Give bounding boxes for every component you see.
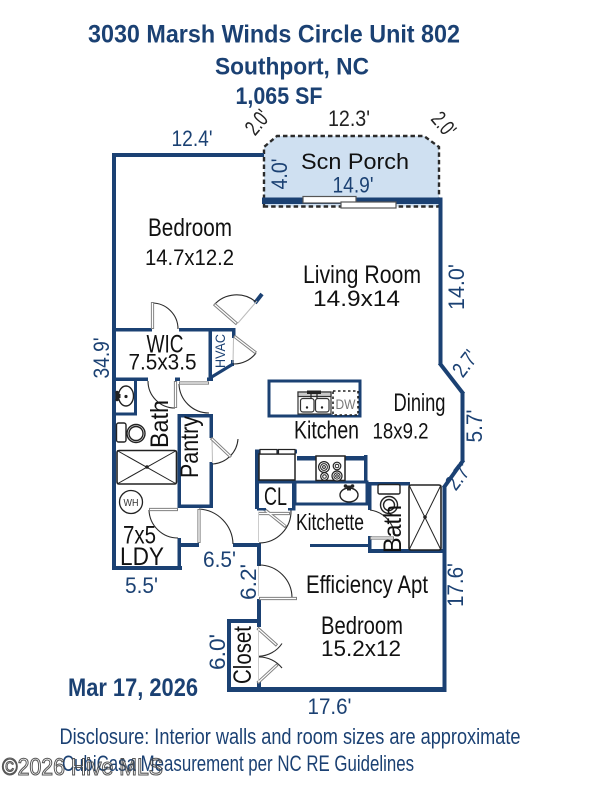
svg-text:Bedroom: Bedroom xyxy=(148,214,232,242)
svg-text:Kitchette: Kitchette xyxy=(296,509,364,535)
svg-text:6.2': 6.2' xyxy=(236,564,261,600)
svg-text:6.0': 6.0' xyxy=(205,634,230,670)
svg-text:Disclosure: Interior walls and: Disclosure: Interior walls and room size… xyxy=(60,724,521,749)
svg-text:18x9.2: 18x9.2 xyxy=(373,419,429,444)
svg-text:7.5x3.5: 7.5x3.5 xyxy=(129,350,197,375)
svg-text:WH: WH xyxy=(124,497,139,509)
svg-text:Efficiency Apt: Efficiency Apt xyxy=(306,571,428,599)
svg-text:14.0': 14.0' xyxy=(444,264,469,310)
svg-text:17.6': 17.6' xyxy=(308,694,352,719)
svg-text:HVAC: HVAC xyxy=(212,334,228,368)
svg-text:14.7x12.2: 14.7x12.2 xyxy=(145,245,234,270)
svg-text:1,065 SF: 1,065 SF xyxy=(236,83,323,110)
svg-text:2.0': 2.0' xyxy=(426,107,461,142)
svg-text:14.9x14: 14.9x14 xyxy=(313,286,400,311)
svg-text:4.0': 4.0' xyxy=(267,159,292,190)
svg-text:CL: CL xyxy=(264,483,287,511)
svg-text:6.5': 6.5' xyxy=(203,547,236,572)
svg-text:12.4': 12.4' xyxy=(172,126,213,151)
svg-text:Dining: Dining xyxy=(394,389,446,417)
svg-text:5.7': 5.7' xyxy=(462,410,487,443)
svg-text:DW: DW xyxy=(336,396,357,412)
svg-text:3030 Marsh Winds Circle Unit 8: 3030 Marsh Winds Circle Unit 802 xyxy=(88,21,460,49)
svg-text:Mar 17, 2026: Mar 17, 2026 xyxy=(68,674,198,702)
svg-text:34.9': 34.9' xyxy=(89,338,114,379)
svg-text:14.9': 14.9' xyxy=(333,173,374,198)
svg-text:Kitchen: Kitchen xyxy=(294,417,359,445)
svg-text:5.5': 5.5' xyxy=(125,573,158,598)
svg-text:Scn Porch: Scn Porch xyxy=(301,149,409,174)
svg-text:Living Room: Living Room xyxy=(303,261,421,289)
svg-text:Bath: Bath xyxy=(146,400,174,448)
svg-text:LDY: LDY xyxy=(120,543,164,571)
svg-text:2.7': 2.7' xyxy=(447,345,483,382)
svg-text:Southport, NC: Southport, NC xyxy=(215,54,369,81)
svg-text:©2026 Hive MLS: ©2026 Hive MLS xyxy=(2,754,163,781)
svg-text:Bath: Bath xyxy=(379,505,407,553)
svg-text:Pantry: Pantry xyxy=(176,416,204,478)
svg-text:15.2x12: 15.2x12 xyxy=(321,636,401,661)
svg-text:17.6': 17.6' xyxy=(443,563,468,607)
svg-text:12.3': 12.3' xyxy=(328,106,370,131)
svg-text:Closet: Closet xyxy=(229,626,257,684)
